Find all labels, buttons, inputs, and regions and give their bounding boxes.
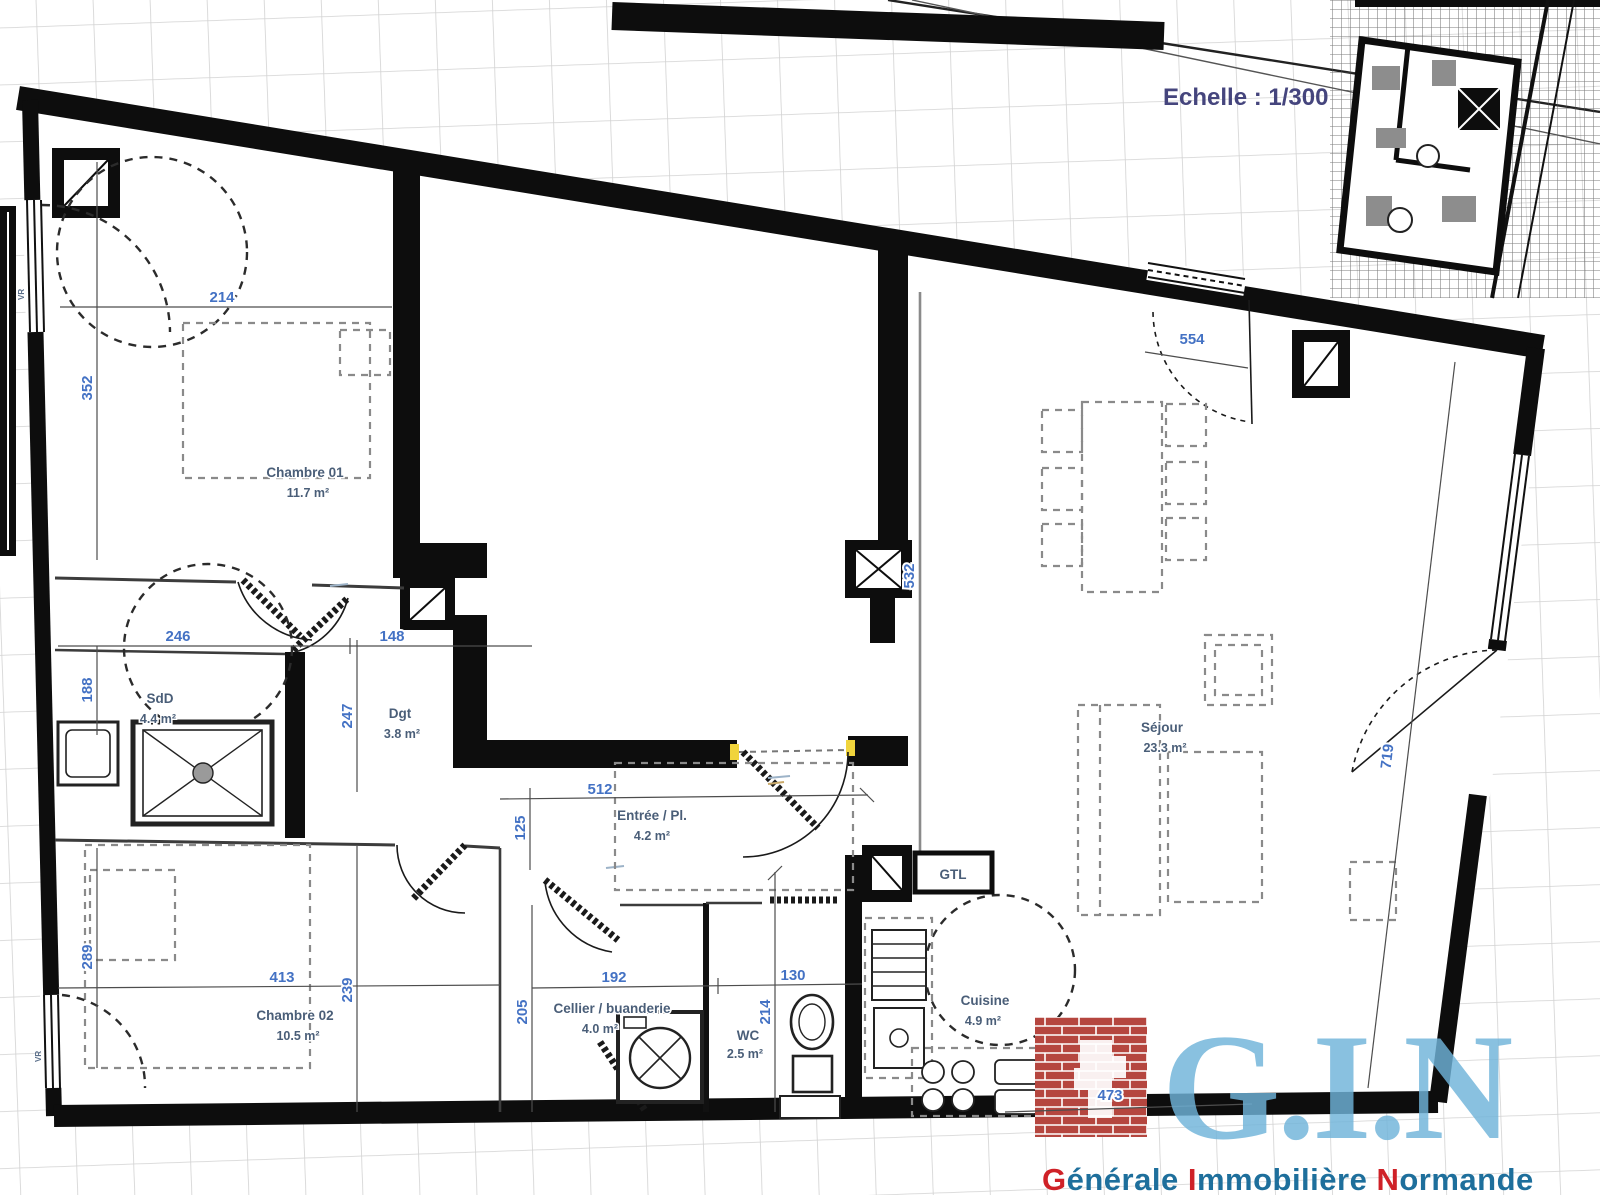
toilet-tank xyxy=(793,1056,832,1092)
floor-plan-drawing: VR VR xyxy=(0,0,1600,1195)
stove-burner xyxy=(952,1089,974,1111)
dim-125: 125 xyxy=(512,815,529,840)
label-chambre01: Chambre 01 xyxy=(266,465,344,480)
dim-214-top: 214 xyxy=(209,289,235,306)
dim-532: 532 xyxy=(901,563,918,588)
sink-bowl xyxy=(995,1090,1039,1114)
area-dgt: 3.8 m² xyxy=(384,727,420,741)
dim-214-wc: 214 xyxy=(757,999,774,1025)
logo-word3-lead: N xyxy=(1367,1162,1399,1195)
logo-word2-rest: mmobilière xyxy=(1197,1162,1367,1195)
dim-719: 719 xyxy=(1378,743,1398,770)
label-wc: WC xyxy=(737,1028,760,1043)
dim-473: 473 xyxy=(1097,1087,1122,1104)
stove-burner xyxy=(922,1061,944,1083)
logo-word1-lead: G xyxy=(1042,1162,1067,1195)
location-inset xyxy=(1330,0,1600,298)
cellier-fixtures xyxy=(618,1012,702,1102)
label-sdd: SdD xyxy=(147,691,174,706)
logo-subtitle: Générale Immobilière Normande xyxy=(1042,1162,1534,1195)
wc-basin xyxy=(780,1096,840,1118)
dim-148: 148 xyxy=(379,628,404,645)
area-chambre01: 11.7 m² xyxy=(287,486,329,500)
label-sejour: Séjour xyxy=(1141,720,1184,735)
area-chambre02: 10.5 m² xyxy=(276,1029,319,1043)
dim-352: 352 xyxy=(79,375,96,400)
kitchen-appliance xyxy=(872,930,926,1000)
label-chambre02: Chambre 02 xyxy=(256,1008,333,1023)
gtl-label: GTL xyxy=(940,867,967,882)
sdd-wall xyxy=(285,652,305,838)
stove-burner xyxy=(952,1061,974,1083)
label-entree: Entrée / Pl. xyxy=(617,808,687,823)
label-dgt: Dgt xyxy=(389,706,412,721)
neighbor-wall-band xyxy=(612,16,1164,36)
floor-plan-page: VR VR xyxy=(0,0,1600,1195)
dim-192: 192 xyxy=(601,969,626,986)
area-entree: 4.2 m² xyxy=(634,829,670,843)
logo-block: 473 G.I.N Générale Immobilière Normande xyxy=(1005,1003,1534,1195)
dim-512: 512 xyxy=(587,781,612,798)
dim-413: 413 xyxy=(269,969,294,986)
dim-205: 205 xyxy=(514,999,531,1024)
area-sejour: 23.3 m² xyxy=(1143,741,1186,755)
shower-drain xyxy=(193,763,213,783)
threshold-tick-left xyxy=(730,744,739,760)
label-cellier: Cellier / buanderie xyxy=(553,1001,671,1016)
label-cuisine: Cuisine xyxy=(961,993,1010,1008)
dim-247: 247 xyxy=(339,703,356,728)
dim-239: 239 xyxy=(339,977,356,1002)
dim-554: 554 xyxy=(1179,331,1205,348)
dim-246: 246 xyxy=(165,628,190,645)
vr-tag-top: VR xyxy=(17,289,26,300)
vr-tag-bottom: VR xyxy=(34,1051,43,1062)
sink-bowl xyxy=(995,1060,1039,1084)
area-wc: 2.5 m² xyxy=(727,1047,763,1061)
area-cellier: 4.0 m² xyxy=(582,1022,618,1036)
wc-right-wall xyxy=(845,855,862,1115)
frame-top-right xyxy=(1292,330,1350,398)
logo-acronym: G.I.N xyxy=(1162,1003,1511,1171)
logo-word2-lead: I xyxy=(1179,1162,1197,1195)
dim-289: 289 xyxy=(79,944,96,969)
logo-word1-rest: énérale xyxy=(1067,1162,1179,1195)
area-sdd: 4.4 m² xyxy=(140,712,176,726)
stove-burner xyxy=(922,1089,944,1111)
dim-188: 188 xyxy=(79,677,96,702)
area-cuisine: 4.9 m² xyxy=(965,1014,1001,1028)
dim-130: 130 xyxy=(780,967,805,984)
logo-word3-rest: ormande xyxy=(1399,1162,1533,1195)
scale-label: Echelle : 1/300 xyxy=(1163,84,1328,111)
